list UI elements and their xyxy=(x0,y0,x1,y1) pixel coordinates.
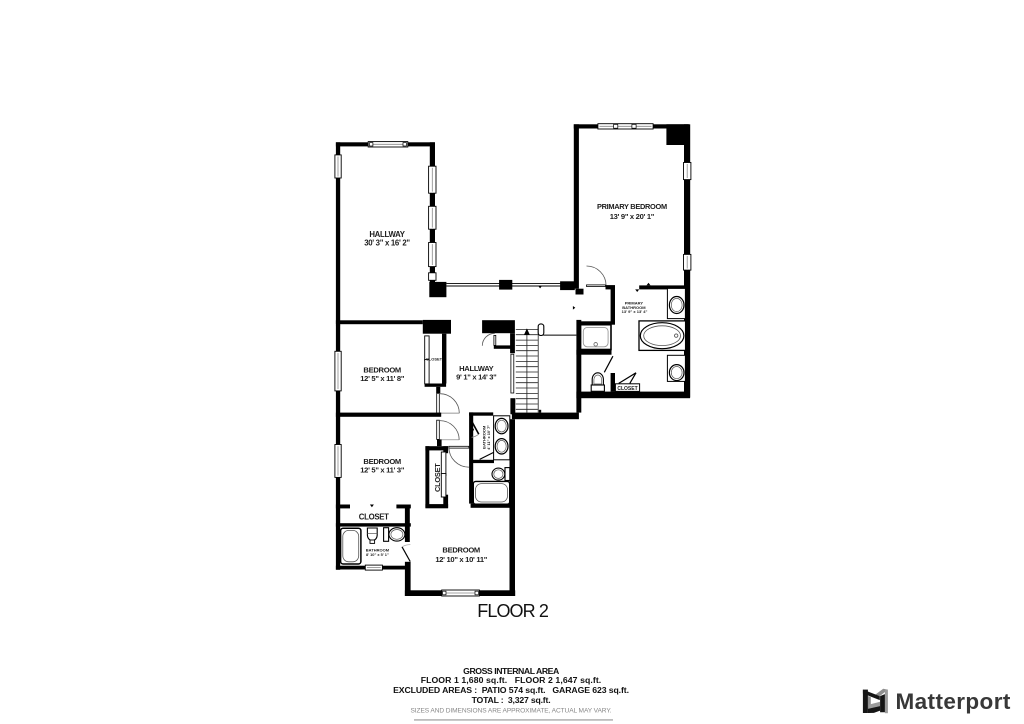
svg-text:13' 9" x 20' 1": 13' 9" x 20' 1" xyxy=(610,212,655,221)
svg-text:FLOOR 1 1,680 sq.ft. FLOOR 2: FLOOR 1 1,680 sq.ft. FLOOR 2 1,647 sq.ft… xyxy=(421,675,602,685)
svg-text:BEDROOM: BEDROOM xyxy=(442,546,480,555)
svg-text:12' 5" x 11' 3": 12' 5" x 11' 3" xyxy=(360,466,405,475)
svg-text:PRIMARY BEDROOM: PRIMARY BEDROOM xyxy=(597,202,667,211)
svg-text:12' 5" x 11' 8": 12' 5" x 11' 8" xyxy=(360,374,405,383)
svg-text:BEDROOM: BEDROOM xyxy=(363,457,401,466)
svg-text:FLOOR 2: FLOOR 2 xyxy=(477,601,549,621)
svg-text:CLOSET: CLOSET xyxy=(426,357,443,362)
svg-text:4' 11" x 10' 7": 4' 11" x 10' 7" xyxy=(486,425,491,450)
svg-text:9' 1" x 14' 3": 9' 1" x 14' 3" xyxy=(456,372,497,381)
svg-text:CLOSET: CLOSET xyxy=(359,512,389,521)
svg-text:CLOSET: CLOSET xyxy=(617,386,637,392)
svg-text:Matterport: Matterport xyxy=(896,689,1011,714)
svg-text:BEDROOM: BEDROOM xyxy=(363,366,401,375)
svg-text:SIZES AND DIMENSIONS ARE APPRO: SIZES AND DIMENSIONS ARE APPROXIMATE, AC… xyxy=(410,708,611,715)
svg-text:12' 10" x 10' 11": 12' 10" x 10' 11" xyxy=(435,555,487,564)
svg-text:CLOSET: CLOSET xyxy=(433,463,442,492)
svg-text:TOTAL : 3,327 sq.ft.: TOTAL : 3,327 sq.ft. xyxy=(472,695,551,705)
svg-text:8' 10" x 5' 1": 8' 10" x 5' 1" xyxy=(366,552,389,557)
svg-text:30' 3" x 16' 2": 30' 3" x 16' 2" xyxy=(364,238,410,247)
svg-text:13' 9" x 13' 4": 13' 9" x 13' 4" xyxy=(622,309,648,314)
svg-text:EXCLUDED AREAS : PATIO 574 sq: EXCLUDED AREAS : PATIO 574 sq.ft. GARAGE… xyxy=(393,685,629,695)
